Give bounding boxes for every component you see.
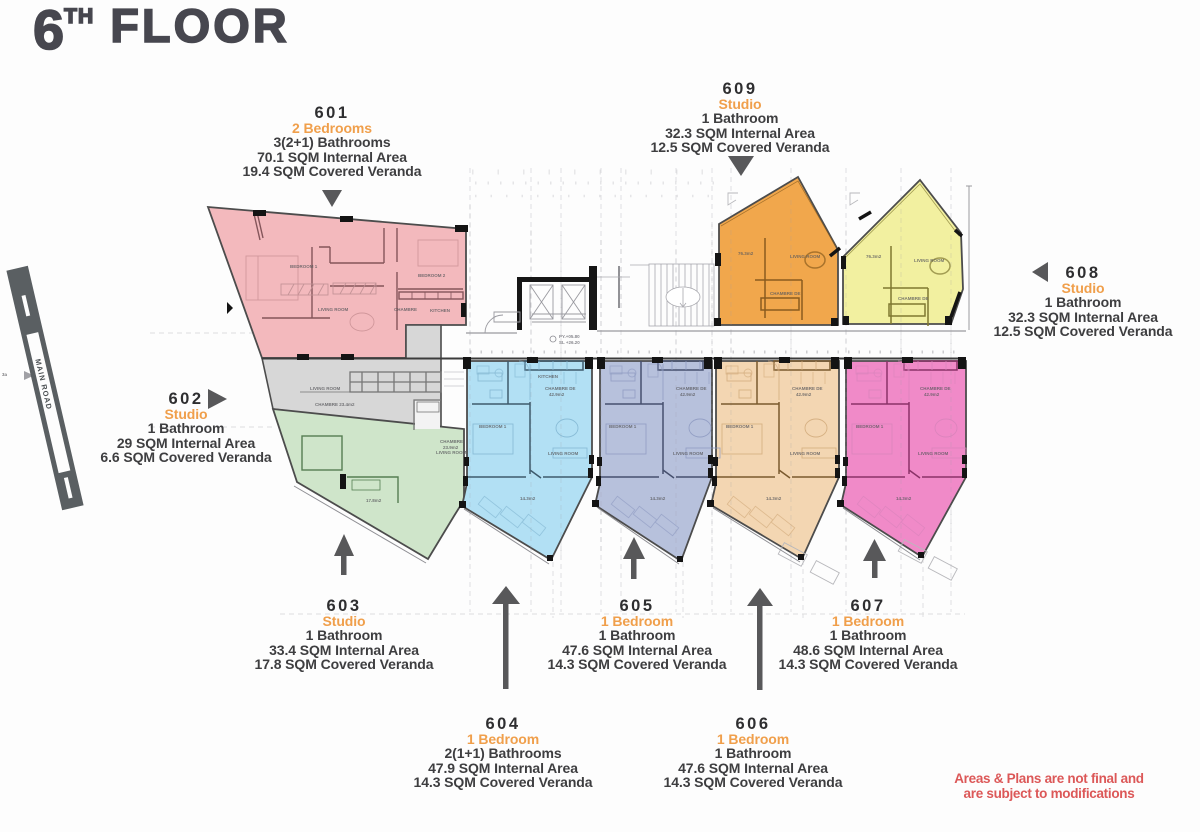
svg-text:LIVING ROOM: LIVING ROOM bbox=[790, 254, 821, 259]
svg-text:BEDROOM 1: BEDROOM 1 bbox=[726, 424, 754, 429]
svg-text:42.9m2: 42.9m2 bbox=[549, 392, 565, 397]
svg-text:LIVING ROOM: LIVING ROOM bbox=[318, 307, 349, 312]
svg-text:14.3m2: 14.3m2 bbox=[896, 496, 912, 501]
svg-text:BEDROOM 1: BEDROOM 1 bbox=[856, 424, 884, 429]
svg-text:42.9m2: 42.9m2 bbox=[796, 392, 812, 397]
svg-text:17.8m2: 17.8m2 bbox=[366, 498, 382, 503]
svg-text:14.3m2: 14.3m2 bbox=[520, 496, 536, 501]
svg-text:CHAMBRE DE: CHAMBRE DE bbox=[545, 386, 576, 391]
svg-text:CHAMBRE DE: CHAMBRE DE bbox=[920, 386, 951, 391]
svg-text:KITCHEN: KITCHEN bbox=[538, 374, 558, 379]
svg-text:LIVING ROOM: LIVING ROOM bbox=[914, 258, 945, 263]
svg-text:LIVING ROOM: LIVING ROOM bbox=[918, 451, 949, 456]
svg-text:BEDROOM 1: BEDROOM 1 bbox=[479, 424, 507, 429]
svg-text:14.3m2: 14.3m2 bbox=[650, 496, 666, 501]
svg-text:14.3m2: 14.3m2 bbox=[766, 496, 782, 501]
svg-text:LIVING ROOM: LIVING ROOM bbox=[436, 450, 467, 455]
svg-text:3a: 3a bbox=[2, 372, 8, 377]
svg-text:CHAMBRE 23.4m2: CHAMBRE 23.4m2 bbox=[315, 402, 355, 407]
svg-text:42.9m2: 42.9m2 bbox=[680, 392, 696, 397]
svg-text:KITCHEN: KITCHEN bbox=[430, 308, 450, 313]
svg-text:BEDROOM 1: BEDROOM 1 bbox=[609, 424, 637, 429]
svg-text:CHAMBRE DE: CHAMBRE DE bbox=[676, 386, 707, 391]
svg-text:CHAMBRE DE: CHAMBRE DE bbox=[792, 386, 823, 391]
svg-text:CHAMBRE DE: CHAMBRE DE bbox=[770, 291, 801, 296]
svg-text:LIVING ROOM: LIVING ROOM bbox=[548, 451, 579, 456]
svg-text:CHAMBRE: CHAMBRE bbox=[440, 439, 463, 444]
svg-text:BEDROOM 1: BEDROOM 1 bbox=[290, 264, 318, 269]
svg-text:CHAMBRE: CHAMBRE bbox=[394, 307, 417, 312]
svg-text:76.3m2: 76.3m2 bbox=[866, 254, 882, 259]
svg-text:76.3m2: 76.3m2 bbox=[738, 251, 754, 256]
svg-text:LIVING ROOM: LIVING ROOM bbox=[790, 451, 821, 456]
svg-text:BEDROOM 2: BEDROOM 2 bbox=[418, 273, 446, 278]
svg-text:42.9m2: 42.9m2 bbox=[924, 392, 940, 397]
svg-text:CHAMBRE DE: CHAMBRE DE bbox=[898, 296, 929, 301]
svg-text:LIVING ROOM: LIVING ROOM bbox=[673, 451, 704, 456]
